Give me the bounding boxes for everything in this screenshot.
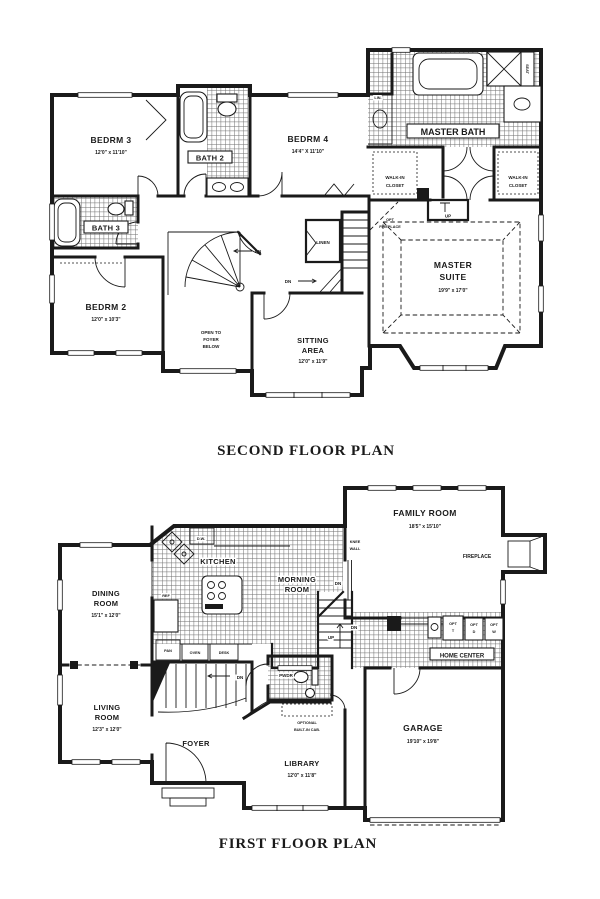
porch-stoop — [162, 788, 214, 798]
pantry-label: PAN — [164, 649, 172, 653]
toilet — [108, 203, 124, 215]
bedrm3-closet-bifold — [146, 100, 166, 140]
library-dims: 12'0" x 11'8" — [287, 773, 317, 779]
home-center-label: HOME CENTER — [440, 654, 485, 660]
stair-wall-wedge — [152, 663, 170, 704]
window — [112, 760, 140, 765]
first-floor-title: FIRST FLOOR PLAN — [219, 836, 377, 852]
up-arrow — [337, 624, 343, 648]
open-to-foyer-line2: FOYER — [203, 337, 219, 342]
knee-wall-line1: KNEE — [350, 540, 361, 544]
opt-fireplace-line1: OPT — [386, 218, 394, 222]
window — [539, 215, 544, 241]
sitting-area-dims: 12'0" x 11'9" — [298, 359, 328, 365]
window — [368, 486, 396, 491]
bath2-label: BATH 2 — [196, 154, 224, 163]
up-label: UP — [445, 214, 451, 219]
column — [130, 661, 138, 669]
bay-window — [266, 393, 350, 398]
open-to-foyer-line3: BELOW — [203, 344, 221, 349]
bedrm2-label: BEDRM 2 — [85, 302, 126, 312]
opt-fireplace-line2: FIREPLACE — [379, 225, 401, 229]
toilet — [294, 672, 308, 683]
walkin-right-line1: WALK-IN — [508, 175, 527, 180]
window — [252, 806, 328, 811]
optional-cab-line2: BUILT-IN CAB. — [294, 728, 320, 732]
window — [58, 580, 63, 610]
vanity — [504, 86, 541, 122]
floor-plan-page: BEDRM 3 12'0" x 11'10" BATH 2 BEDRM 4 14… — [0, 0, 600, 899]
dining-room-line1: DINING — [92, 589, 120, 598]
dishwasher-label: D.W. — [197, 537, 205, 541]
bedrm3-label: BEDRM 3 — [90, 135, 131, 145]
bath3-label: BATH 3 — [92, 224, 120, 233]
library-label: LIBRARY — [284, 759, 319, 768]
morning-room-line1: MORNING — [278, 575, 316, 584]
secondary-walls-second — [238, 200, 468, 262]
island-oven — [205, 604, 223, 609]
opt-washer-box — [485, 618, 503, 640]
laundry-sink — [428, 617, 441, 638]
window — [458, 486, 486, 491]
dn-arrow — [208, 674, 230, 678]
sitting-area-line2: AREA — [302, 346, 325, 355]
window — [413, 486, 441, 491]
kitchen-label: KITCHEN — [200, 557, 235, 566]
toilet-tank — [125, 201, 133, 215]
firebox-sides — [530, 537, 541, 571]
bedrm4-dims: 14'4" X 11'10" — [292, 149, 325, 155]
window — [80, 543, 112, 548]
fireplace-label: FIREPLACE — [463, 554, 492, 560]
double-door-arcs — [443, 147, 494, 200]
floor-plan-canvas: BEDRM 3 12'0" x 11'10" BATH 2 BEDRM 4 14… — [0, 0, 600, 899]
second-floor-title: SECOND FLOOR PLAN — [217, 443, 395, 459]
opt-dryer-line1: OPT — [470, 623, 478, 627]
vanity — [207, 178, 248, 196]
dining-room-dims: 15'1" x 12'0" — [91, 613, 121, 619]
window — [539, 286, 544, 312]
garage-dims: 19'10" x 19'8" — [407, 739, 440, 745]
living-room-line2: ROOM — [95, 713, 120, 722]
window — [78, 93, 132, 98]
window — [68, 351, 94, 356]
window — [288, 93, 338, 98]
dn-label-foyer: DN — [237, 675, 244, 680]
up-arrow — [440, 203, 450, 212]
linen-cabinet-label: LIN. — [374, 96, 381, 100]
bedrm4-label: BEDRM 4 — [287, 134, 328, 144]
wall-block — [387, 616, 401, 631]
toilet-tank — [217, 94, 237, 102]
bedrm2-dims: 12'0" x 10'3" — [91, 317, 121, 323]
living-room-dims: 12'3" x 12'0" — [92, 727, 122, 733]
window — [501, 580, 506, 604]
dn-arrow-main — [234, 249, 252, 253]
foyer-label: FOYER — [182, 739, 210, 748]
foyer-stairs — [152, 663, 246, 712]
second-floor-plan: BEDRM 3 12'0" x 11'10" BATH 2 BEDRM 4 14… — [50, 48, 544, 398]
dining-room-line2: ROOM — [94, 599, 119, 608]
opt-tub-line1: OPT — [449, 622, 457, 626]
column — [70, 661, 78, 669]
walkin-left-line1: WALK-IN — [385, 175, 404, 180]
firebox — [508, 541, 530, 567]
walkin-left-line2: CLOSET — [386, 183, 405, 188]
opt-washer-line1: OPT — [490, 623, 498, 627]
window — [72, 760, 100, 765]
garage-label: GARAGE — [403, 723, 443, 733]
open-to-foyer-line1: OPEN TO — [201, 330, 222, 335]
up-label: UP — [328, 635, 334, 640]
ref-label: REF — [162, 594, 170, 598]
dn-label-back: DN — [285, 279, 292, 284]
bedrm3-dims: 12'0" x 11'10" — [95, 150, 127, 156]
opt-washer-line2: W — [492, 630, 496, 634]
master-suite-line2: SUITE — [439, 272, 466, 282]
optional-cabinet-outline — [282, 704, 332, 716]
window — [50, 275, 55, 303]
family-fireplace — [508, 537, 541, 571]
window — [180, 369, 236, 374]
refrigerator — [154, 600, 178, 632]
family-room-label: FAMILY ROOM — [393, 508, 456, 518]
bedrm4-closet-bifold — [324, 184, 354, 196]
dn-label-family: DN — [351, 625, 358, 630]
stair-rail-curve — [158, 698, 246, 712]
sink — [306, 689, 315, 698]
porch-step — [170, 798, 206, 806]
window — [392, 48, 410, 53]
sitting-area-line1: SITTING — [297, 336, 329, 345]
back-stairs-first — [318, 600, 352, 648]
family-room-dims: 18'5" x 15'10" — [409, 524, 442, 530]
toilet-tank — [312, 669, 318, 685]
optional-cab-line1: OPTIONAL — [297, 721, 317, 725]
wall-block — [417, 188, 429, 200]
back-stairs-second — [320, 220, 368, 292]
walkin-right-line2: CLOSET — [509, 183, 528, 188]
knee-wall-line2: WALL — [350, 547, 361, 551]
opt-tub-box — [443, 616, 463, 640]
dn-label-main: DN — [255, 249, 262, 254]
master-suite-dims: 19'9" x 17'0" — [438, 288, 468, 294]
desk-label: DESK — [219, 651, 230, 655]
main-stairs-second — [168, 232, 244, 295]
dn-label-knee: DN — [335, 581, 342, 586]
window — [278, 666, 312, 671]
oven-label: OVEN — [190, 651, 201, 655]
window — [116, 351, 142, 356]
morning-room-line2: ROOM — [285, 585, 310, 594]
linen-label: LINEN — [316, 240, 330, 245]
linen-bifold — [306, 230, 316, 256]
window — [58, 675, 63, 705]
garage-door — [370, 818, 500, 823]
pwdr-door-arc — [246, 664, 268, 686]
master-suite-line1: MASTER — [434, 260, 472, 270]
window — [50, 204, 55, 240]
dn-arrow-back — [298, 279, 316, 283]
opt-dryer-line2: D — [473, 630, 476, 634]
living-room-line1: LIVING — [94, 703, 121, 712]
toilet — [218, 102, 236, 116]
first-floor-plan: FAMILY ROOM 18'5" x 15'10" FIREPLACE KNE… — [58, 486, 545, 825]
bay-window — [420, 366, 488, 371]
master-bath-label: MASTER BATH — [421, 127, 486, 137]
pwdr-label: PWDR — [279, 673, 293, 678]
opt-dryer-box — [465, 618, 483, 640]
shower-seat-label: SEAT — [525, 64, 529, 75]
